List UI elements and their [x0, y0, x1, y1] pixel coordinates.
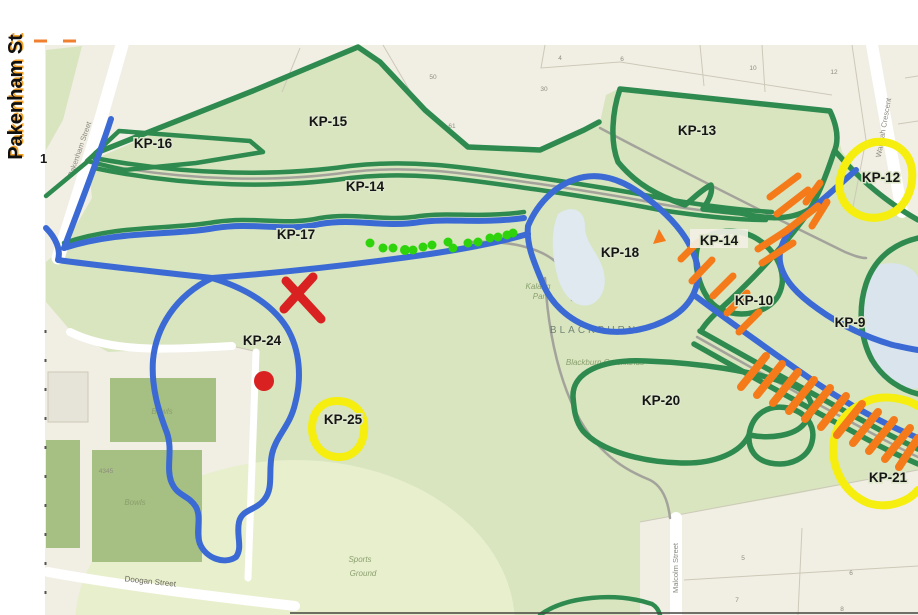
map-figure: BLACKBURN Blackburn Creeklands Kalang Pa…: [0, 0, 918, 615]
bowls-green-c: [46, 440, 80, 548]
zone-label-kp14: KP-14: [346, 179, 385, 194]
parcel-number: 8: [840, 606, 844, 613]
green-dot: [486, 234, 495, 243]
green-dot: [509, 229, 518, 238]
green-dot: [389, 244, 398, 253]
green-dot: [379, 244, 388, 253]
malcolm-street-label: Malcolm Street: [671, 542, 680, 593]
parcel-number: 10: [749, 65, 757, 72]
zone-label-kp25: KP-25: [324, 412, 363, 427]
axis-label-group: Pakenham St Pakenham St: [5, 32, 29, 159]
bowls-green-b: [92, 450, 202, 562]
parcel-number: 4: [558, 55, 562, 62]
zone-label-edge: 1: [40, 151, 47, 166]
zone-label-kp9: KP-9: [835, 315, 866, 330]
parcel-number: 6: [620, 56, 624, 63]
green-dot: [494, 233, 503, 242]
sports-ground-label-1: Sports: [348, 555, 371, 564]
zone-label-kp15: KP-15: [309, 114, 348, 129]
building-block: [48, 372, 88, 422]
parcel-number: 7: [735, 597, 739, 604]
zone-label-kp13: KP-13: [678, 123, 717, 138]
zone-label-kp24: KP-24: [243, 333, 282, 348]
green-dot: [428, 241, 437, 250]
parcel-number: 6: [849, 570, 853, 577]
zone-label-kp18: KP-18: [601, 245, 640, 260]
red-dot-marker: [254, 371, 274, 391]
green-dot: [409, 246, 418, 255]
parcel-number: 5: [741, 555, 745, 562]
green-dot: [419, 243, 428, 252]
map-canvas: BLACKBURN Blackburn Creeklands Kalang Pa…: [0, 0, 918, 615]
green-dot: [464, 239, 473, 248]
green-dot: [449, 244, 458, 253]
zone-label-kp21: KP-21: [869, 470, 908, 485]
zone-label-kp10: KP-10: [735, 293, 773, 308]
green-dot: [366, 239, 375, 248]
zone-label-kp17: KP-17: [277, 227, 315, 242]
parcel-number: 12: [830, 69, 838, 76]
bowls-label-b: Bowls: [124, 498, 145, 507]
sports-ground-label-2: Ground: [350, 569, 377, 578]
zone-label-kp14b: KP-14: [700, 233, 739, 248]
parcel-number: 50: [429, 74, 437, 81]
parcel-number: 30: [540, 86, 548, 93]
green-dot: [474, 238, 483, 247]
lot-number-4345: 4345: [99, 468, 114, 475]
zone-label-kp16: KP-16: [134, 136, 173, 151]
zone-label-kp12: KP-12: [862, 170, 900, 185]
axis-label: Pakenham St: [5, 34, 27, 160]
zone-label-kp20: KP-20: [642, 393, 680, 408]
